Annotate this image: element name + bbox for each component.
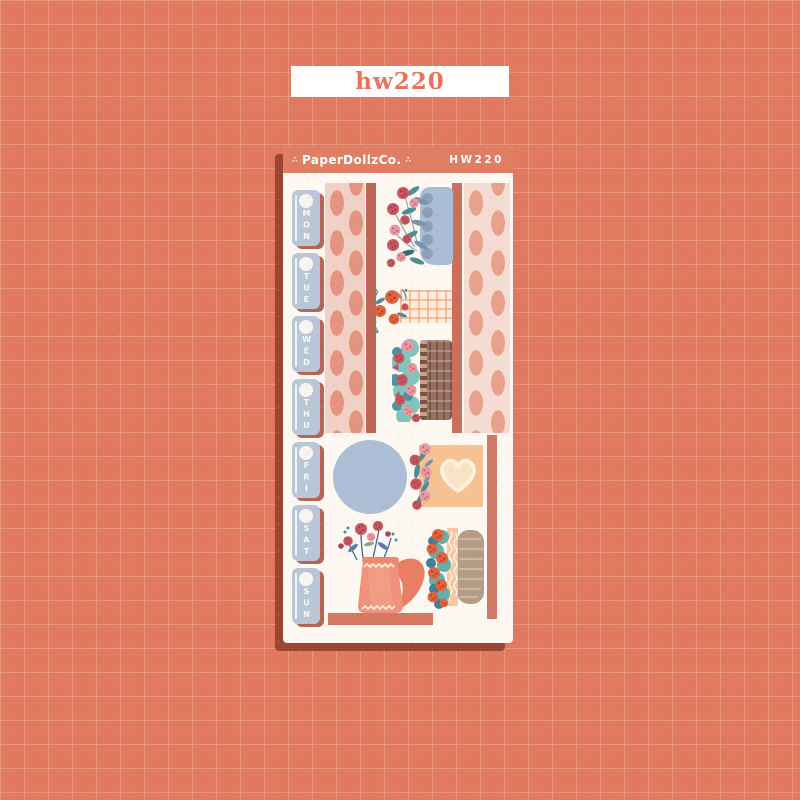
day-tab-thu: THU [292,379,320,435]
brand-logo: ∴ PaperDollzCo. ∴ [292,153,411,167]
hole-punch-dot [299,383,313,397]
hole-punch-dot [299,320,313,334]
basket-flowers-illustration [392,338,426,422]
hole-punch-dot [299,194,313,208]
day-tab-wed: WED [292,316,320,372]
washi-strip-right [464,183,510,433]
brand-name: PaperDollzCo. [302,153,401,167]
day-label: TUE [302,272,310,307]
hole-punch-dot [299,257,313,271]
sparkle-icon: ∴ [405,155,411,164]
accent-strip-right [452,183,462,433]
flower-basket-sticker [398,340,452,420]
day-label: WED [302,335,310,370]
day-tab-mon: MON [292,190,320,246]
day-label: FRI [302,461,310,496]
sparkle-icon: ∴ [292,155,298,164]
day-label: SAT [302,524,310,559]
gingham-flowers-illustration [368,283,416,337]
heart-icon [436,455,480,495]
flower-planter-sticker [383,183,453,269]
teapot-illustration [333,518,433,615]
day-tab-sat: SAT [292,505,320,561]
day-tab-tue: TUE [292,253,320,309]
day-label: MON [302,209,310,244]
day-label: THU [302,398,310,433]
teapot-sticker [333,518,433,615]
cake-illustration [426,525,488,609]
sheet-sku: HW220 [449,154,504,166]
accent-strip-bottom [487,435,497,619]
washi-strip-left [325,183,365,433]
day-tab-column: MON TUE WED THU FRI SAT SUN [292,190,324,631]
hole-punch-dot [299,509,313,523]
product-code-text: hw220 [355,68,445,95]
day-tab-fri: FRI [292,442,320,498]
circle-sticker [333,440,407,514]
day-tab-sun: SUN [292,568,320,624]
shelf-strip-sticker [328,613,433,625]
sheet-header: ∴ PaperDollzCo. ∴ HW220 [283,146,513,173]
product-code-label: hw220 [291,66,509,97]
sticker-sheet: ∴ PaperDollzCo. ∴ HW220 MON TUE WED THU … [283,146,513,643]
planter-flowers-illustration [383,183,429,269]
cake-sticker [426,525,488,609]
heart-card-sticker [419,445,483,507]
hole-punch-dot [299,446,313,460]
hole-punch-dot [299,572,313,586]
day-label: SUN [302,587,310,622]
gingham-washi-sticker [400,290,452,323]
heart-card-roses-illustration [407,441,441,513]
